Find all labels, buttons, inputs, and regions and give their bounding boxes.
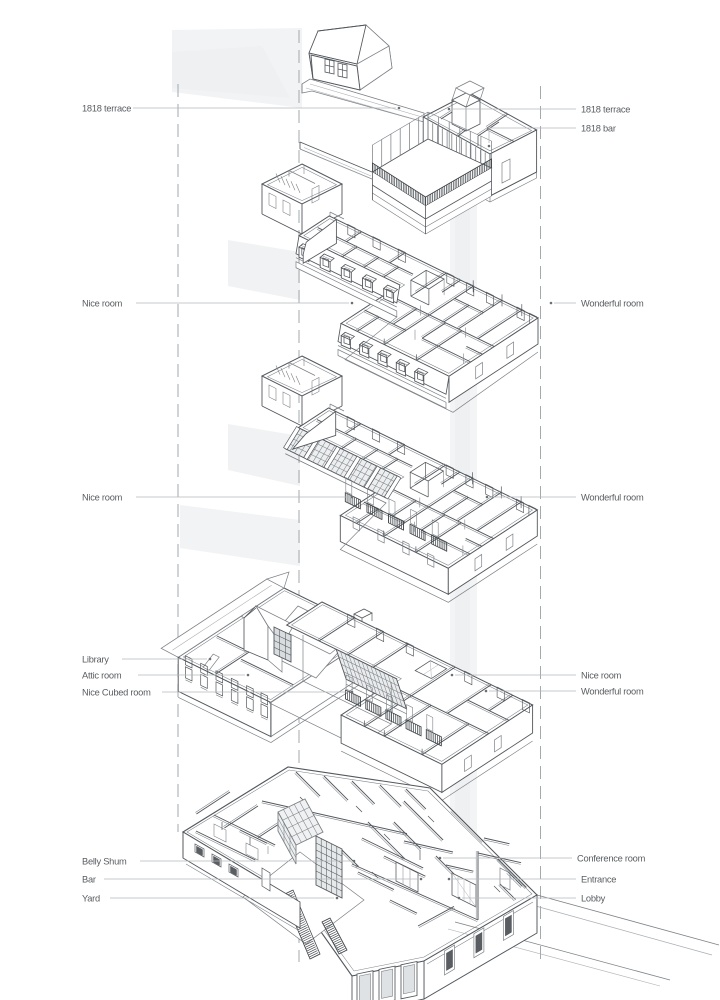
svg-text:Nice room: Nice room <box>581 671 622 681</box>
svg-text:Wonderful room: Wonderful room <box>581 299 644 309</box>
svg-text:Conference room: Conference room <box>577 854 646 864</box>
svg-text:Nice room: Nice room <box>82 493 123 503</box>
svg-text:1818 bar: 1818 bar <box>581 124 616 134</box>
svg-text:1818 terrace: 1818 terrace <box>82 104 131 114</box>
svg-text:Lobby: Lobby <box>581 894 606 904</box>
svg-text:Nice Cubed room: Nice Cubed room <box>82 688 151 698</box>
svg-text:Bar: Bar <box>82 875 96 885</box>
svg-text:Library: Library <box>82 655 109 665</box>
svg-text:Yard: Yard <box>82 894 100 904</box>
svg-text:Wonderful room: Wonderful room <box>581 687 644 697</box>
svg-text:Wonderful room: Wonderful room <box>581 493 644 503</box>
svg-text:Entrance: Entrance <box>581 875 616 885</box>
svg-text:Nice room: Nice room <box>82 299 123 309</box>
svg-text:Attic room: Attic room <box>82 671 122 681</box>
svg-text:Belly Shum: Belly Shum <box>82 857 127 867</box>
svg-text:1818 terrace: 1818 terrace <box>581 105 630 115</box>
